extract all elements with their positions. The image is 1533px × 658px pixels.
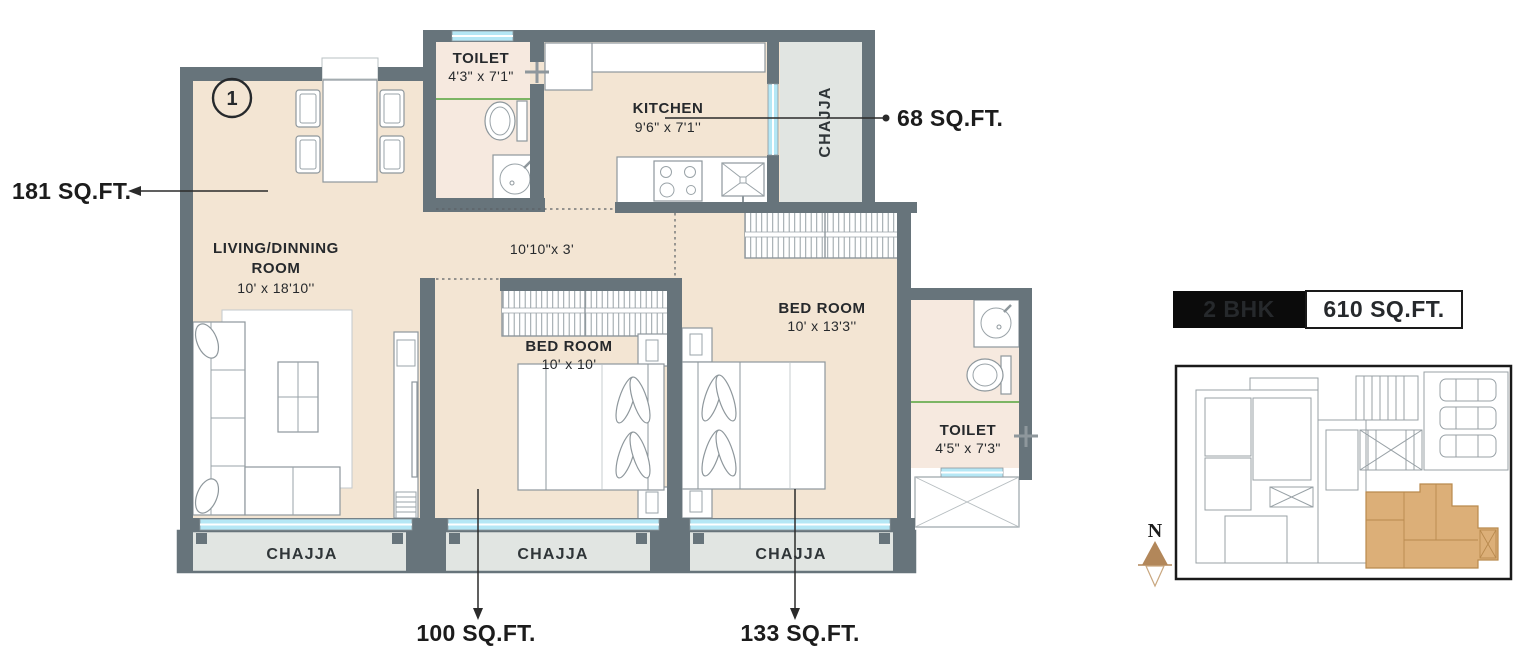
- leader-dot-icon: [883, 115, 890, 122]
- north-arrow-down-icon: [1146, 566, 1164, 586]
- fridge: [545, 43, 592, 90]
- bedroom1-dims: 10' x 10': [542, 356, 597, 372]
- unit-number: 1: [226, 88, 237, 110]
- window: [768, 84, 778, 155]
- north-label: N: [1148, 520, 1163, 542]
- window: [941, 468, 1003, 477]
- exterior-step: [911, 202, 1034, 288]
- window: [448, 519, 659, 530]
- main-door: [322, 58, 378, 79]
- north-arrow: N: [1138, 520, 1172, 586]
- leader-arrow-icon: [790, 608, 800, 620]
- toilet1-dims: 4'3" x 7'1": [448, 68, 514, 84]
- bedroom1-furniture: [502, 286, 668, 519]
- svg-text:133 SQ.FT.: 133 SQ.FT.: [740, 620, 859, 646]
- bed: [518, 364, 664, 490]
- unit-info-badge: 2 BHK 610 SQ.FT.: [1173, 291, 1462, 328]
- bedroom2-dims: 10' x 13'3'': [787, 318, 856, 334]
- living-room-label-2: ROOM: [251, 260, 300, 277]
- chajja-right-label: CHAJJA: [755, 546, 826, 563]
- chajja-mid-label: CHAJJA: [517, 546, 588, 563]
- unit-type: 2 BHK: [1203, 296, 1275, 322]
- chajja-left-label: CHAJJA: [266, 546, 337, 563]
- toilet1-label: TOILET: [453, 50, 510, 67]
- svg-text:68 SQ.FT.: 68 SQ.FT.: [897, 105, 1003, 131]
- washbasin: [974, 300, 1019, 347]
- svg-text:100 SQ.FT.: 100 SQ.FT.: [416, 620, 535, 646]
- chajja-top-label: CHAJJA: [817, 86, 834, 157]
- leader-arrow-icon: [473, 608, 483, 620]
- living-room-dims: 10' x 18'10'': [237, 280, 314, 296]
- north-arrow-up-icon: [1142, 541, 1168, 565]
- stove: [654, 161, 702, 201]
- wardrobe: [502, 286, 668, 336]
- tv-unit: [394, 332, 418, 518]
- bed: [682, 362, 825, 489]
- window: [690, 519, 890, 530]
- side-table: [682, 328, 712, 362]
- svg-text:181 SQ.FT.: 181 SQ.FT.: [12, 178, 131, 204]
- coffee-table: [278, 362, 318, 432]
- living-room-label: LIVING/DINNING: [213, 240, 339, 257]
- window: [452, 31, 513, 41]
- unit-area: 610 SQ.FT.: [1323, 296, 1444, 322]
- toilet2-dims: 4'5" x 7'3": [935, 440, 1001, 456]
- wc: [485, 101, 527, 141]
- bedroom2-label: BED ROOM: [778, 300, 865, 317]
- wardrobe: [745, 212, 905, 258]
- passage-dims: 10'10"x 3': [510, 241, 574, 257]
- key-plan: [1176, 366, 1511, 579]
- kitchen-dims: 9'6" x 7'1'': [635, 119, 701, 135]
- window: [200, 519, 412, 530]
- ledge-box: [915, 477, 1019, 527]
- exterior-gap: [193, 42, 423, 67]
- kitchen-label: KITCHEN: [633, 100, 704, 117]
- bedroom1-label: BED ROOM: [525, 338, 612, 355]
- floor-plan-drawing: 1 LIVING/DINNING ROOM 10' x 18'10'' TOIL…: [0, 0, 1533, 658]
- toilet2-label: TOILET: [940, 422, 997, 439]
- floor-plan-page: 1 LIVING/DINNING ROOM 10' x 18'10'' TOIL…: [0, 0, 1533, 658]
